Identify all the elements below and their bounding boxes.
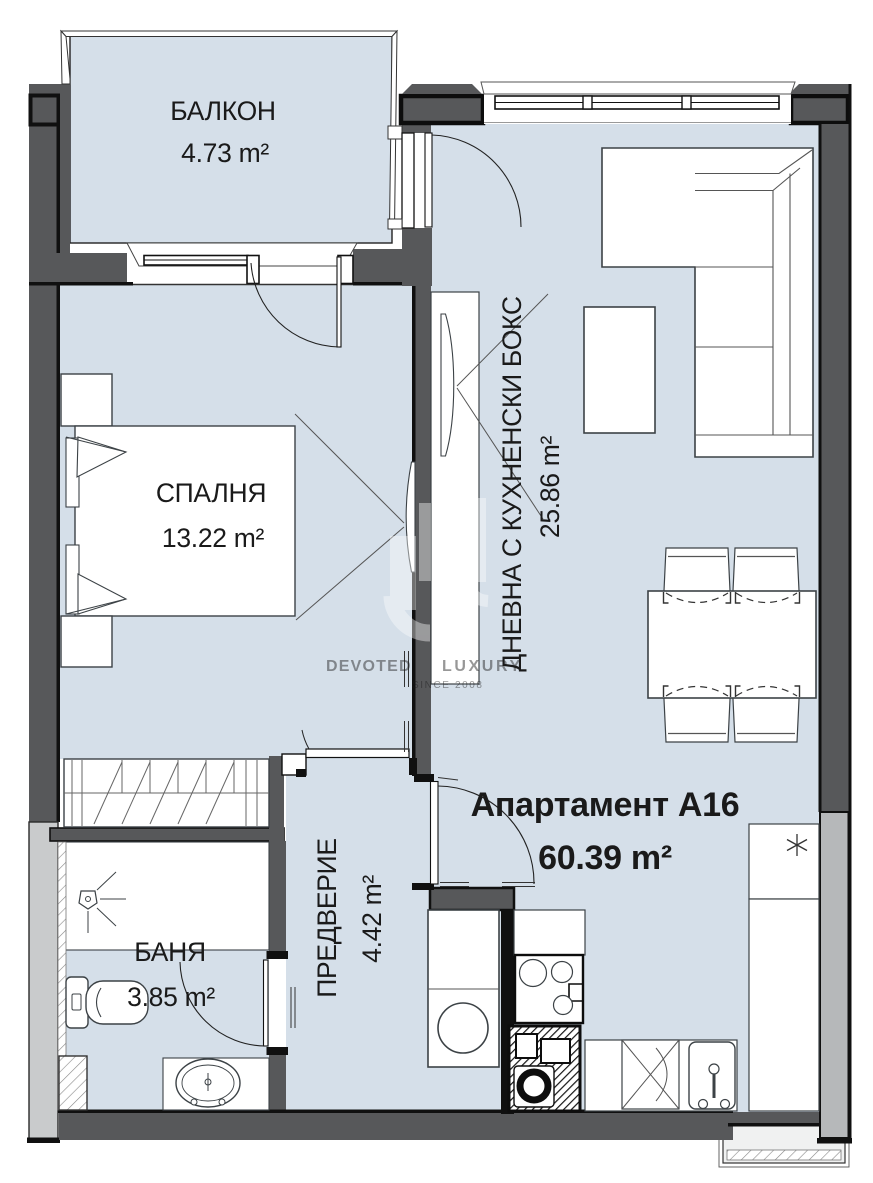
svg-text:БАЛКОН: БАЛКОН bbox=[170, 96, 276, 126]
svg-text:13.22 m²: 13.22 m² bbox=[162, 523, 265, 553]
svg-text:ПРЕДВЕРИЕ: ПРЕДВЕРИЕ bbox=[312, 838, 342, 997]
svg-text:Апартамент А16: Апартамент А16 bbox=[471, 786, 740, 824]
svg-text:4.42 m²: 4.42 m² bbox=[357, 875, 387, 963]
svg-text:60.39 m²: 60.39 m² bbox=[538, 839, 672, 877]
svg-text:SINCE 2008: SINCE 2008 bbox=[412, 680, 484, 691]
svg-text:БАНЯ: БАНЯ bbox=[134, 937, 206, 967]
svg-text:СПАЛНЯ: СПАЛНЯ bbox=[156, 478, 266, 508]
svg-text:3.85 m²: 3.85 m² bbox=[127, 982, 215, 1012]
svg-text:ДНЕВНА С КУХНЕНСКИ БОКС: ДНЕВНА С КУХНЕНСКИ БОКС bbox=[497, 296, 527, 672]
svg-text:LUXURY: LUXURY bbox=[442, 658, 523, 675]
svg-text:25.86 m²: 25.86 m² bbox=[535, 435, 565, 538]
svg-text:DEVOTED: DEVOTED bbox=[326, 658, 412, 675]
svg-text:4.73 m²: 4.73 m² bbox=[181, 138, 269, 168]
